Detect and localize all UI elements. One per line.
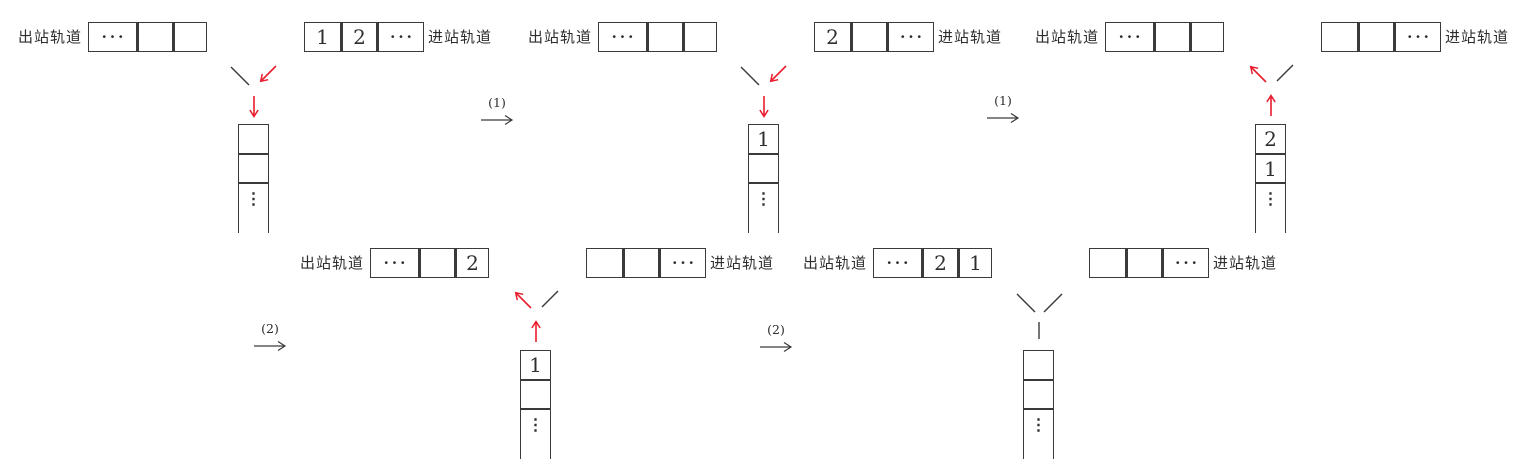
- stack-cell: 1: [521, 351, 550, 381]
- entry-track-label: 进站轨道: [1445, 29, 1509, 45]
- exit-track: ···: [1105, 22, 1224, 52]
- right-arrow-icon: [253, 339, 287, 351]
- exit-track-cell: [418, 249, 454, 277]
- exit-track-cell: [646, 23, 682, 51]
- outgoing-train-arrow-icon: [1251, 67, 1266, 82]
- entry-track-cell: [1357, 23, 1393, 51]
- step-arrow-3: (2): [253, 322, 287, 355]
- exit-track: ··· 2 1: [873, 248, 992, 278]
- track-junction: [738, 63, 790, 121]
- entry-track-cell: [850, 23, 886, 51]
- entry-track-cell: 2: [340, 23, 376, 51]
- step-label: (2): [253, 322, 287, 336]
- stack-cell: [239, 155, 268, 184]
- track-junction: [1013, 289, 1065, 347]
- station-stack: 1 ⋮: [520, 350, 551, 459]
- stack-cell-more: ⋮: [1024, 410, 1053, 459]
- state-panel-5: 出站轨道 ··· 2 1 ⋮ ··· 进站轨道: [803, 226, 1285, 471]
- exit-track-cell: [1153, 23, 1189, 51]
- exit-track-label: 出站轨道: [528, 29, 592, 45]
- exit-track-cell: [682, 23, 716, 51]
- right-arrow-icon: [480, 113, 514, 125]
- right-branch-line: [1044, 294, 1062, 312]
- track-junction: [1245, 63, 1297, 121]
- entry-track-cell: 1: [305, 23, 340, 51]
- entry-track: ···: [1321, 22, 1441, 52]
- exit-track-cell: ···: [874, 249, 921, 277]
- step-label: (1): [986, 94, 1020, 108]
- exit-track: ···: [88, 22, 207, 52]
- step-arrow-1: (1): [480, 96, 514, 129]
- exit-track-cell: ···: [599, 23, 646, 51]
- entry-track-cell: 2: [815, 23, 850, 51]
- stack-cell: [1024, 381, 1053, 410]
- state-panel-3: 出站轨道 ··· 2 1 ⋮ ··· 进站轨道: [1035, 0, 1517, 246]
- exit-track-label: 出站轨道: [803, 255, 867, 271]
- stack-cell-more: ⋮: [239, 184, 268, 233]
- entry-track-label: 进站轨道: [938, 29, 1002, 45]
- state-panel-2: 出站轨道 ··· 1 ⋮ 2 ··· 进站轨道: [528, 0, 1010, 246]
- entry-track-label: 进站轨道: [710, 255, 774, 271]
- entry-track-cell: ···: [658, 249, 705, 277]
- track-junction: [510, 289, 562, 347]
- state-panel-4: 出站轨道 ··· 2 1 ⋮ ··· 进站轨道: [300, 226, 782, 471]
- track-junction: [228, 63, 280, 121]
- entry-track-cell: [622, 249, 658, 277]
- right-branch-line: [1277, 65, 1293, 81]
- incoming-train-arrow-icon: [261, 66, 276, 81]
- step-arrow-4: (2): [759, 323, 793, 356]
- stack-cell: 1: [1256, 155, 1285, 184]
- right-branch-line: [542, 291, 558, 307]
- entry-track-label: 进站轨道: [428, 29, 492, 45]
- exit-track-cell: 2: [921, 249, 957, 277]
- stack-cell: [749, 155, 778, 184]
- stack-cell: [239, 125, 268, 155]
- exit-track-cell: [172, 23, 206, 51]
- entry-track-label: 进站轨道: [1213, 255, 1277, 271]
- right-arrow-icon: [759, 340, 793, 352]
- entry-track: ···: [586, 248, 706, 278]
- exit-track-label: 出站轨道: [300, 255, 364, 271]
- exit-track-cell: ···: [89, 23, 136, 51]
- station-stack: 1 ⋮: [748, 124, 779, 233]
- incoming-train-arrow-icon: [771, 66, 786, 81]
- step-label: (1): [480, 96, 514, 110]
- step-label: (2): [759, 323, 793, 337]
- stack-cell: 1: [749, 125, 778, 155]
- stack-cell-more: ⋮: [521, 410, 550, 459]
- exit-track-label: 出站轨道: [1035, 29, 1099, 45]
- left-branch-line: [231, 67, 249, 85]
- entry-track-cell: [587, 249, 622, 277]
- entry-track: 1 2 ···: [304, 22, 424, 52]
- entry-track-cell: ···: [886, 23, 933, 51]
- stack-cell: [1024, 351, 1053, 381]
- exit-track-cell: [136, 23, 172, 51]
- step-arrow-2: (1): [986, 94, 1020, 127]
- entry-track: ···: [1089, 248, 1209, 278]
- station-stack: ⋮: [238, 124, 269, 233]
- exit-track-cell: 2: [454, 249, 488, 277]
- stack-cell: [521, 381, 550, 410]
- entry-track: 2 ···: [814, 22, 934, 52]
- station-stack: ⋮: [1023, 350, 1054, 459]
- exit-track: ··· 2: [370, 248, 489, 278]
- exit-track: ···: [598, 22, 717, 52]
- exit-track-cell: ···: [371, 249, 418, 277]
- entry-track-cell: [1125, 249, 1161, 277]
- right-arrow-icon: [986, 111, 1020, 123]
- station-stack: 2 1 ⋮: [1255, 124, 1286, 233]
- entry-track-cell: [1090, 249, 1125, 277]
- left-branch-line: [741, 67, 759, 85]
- exit-track-cell: 1: [957, 249, 991, 277]
- stack-cell: 2: [1256, 125, 1285, 155]
- state-panel-1: 出站轨道 ··· ⋮ 1 2 ··· 进站轨道: [18, 0, 500, 246]
- stack-train-diagram: 出站轨道 ··· ⋮ 1 2 ··· 进站轨道 (1): [0, 0, 1536, 471]
- entry-track-cell: ···: [1393, 23, 1440, 51]
- exit-track-cell: [1189, 23, 1223, 51]
- exit-track-cell: ···: [1106, 23, 1153, 51]
- entry-track-cell: [1322, 23, 1357, 51]
- outgoing-train-arrow-icon: [516, 293, 531, 308]
- entry-track-cell: ···: [376, 23, 423, 51]
- left-branch-line: [1017, 294, 1035, 312]
- entry-track-cell: ···: [1161, 249, 1208, 277]
- exit-track-label: 出站轨道: [18, 29, 82, 45]
